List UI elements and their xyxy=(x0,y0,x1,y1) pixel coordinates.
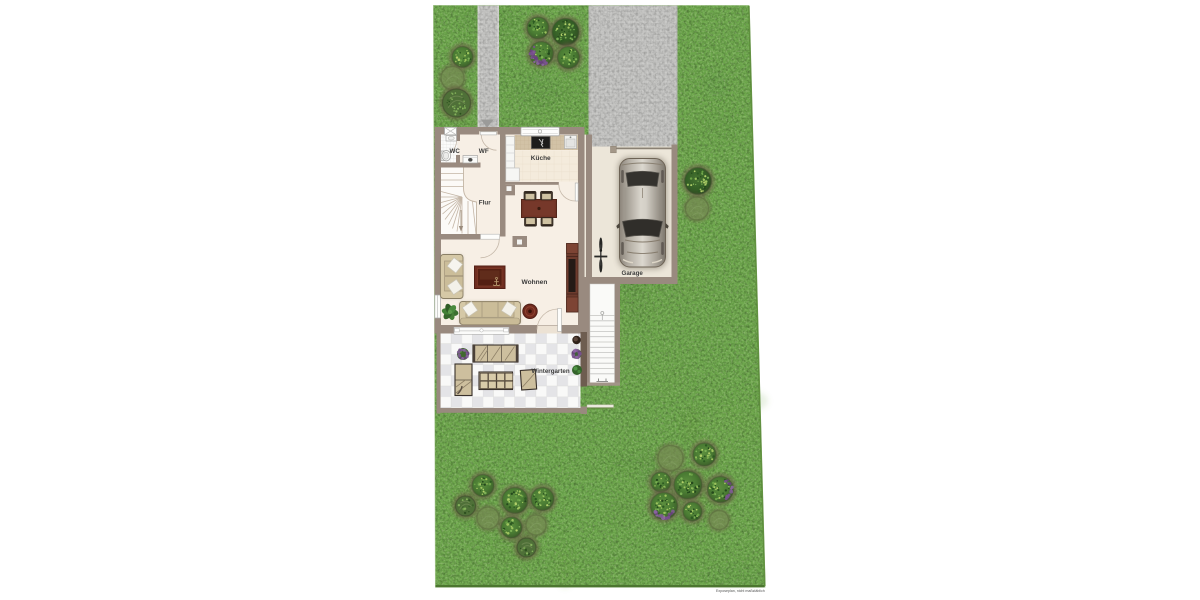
svg-text:Wohnen: Wohnen xyxy=(522,279,548,286)
svg-text:Exposeplan, nicht maßstäblich: Exposeplan, nicht maßstäblich xyxy=(716,589,765,593)
svg-text:Wintergarten: Wintergarten xyxy=(532,368,570,375)
svg-text:WC: WC xyxy=(450,148,461,155)
svg-text:Garage: Garage xyxy=(622,270,644,277)
svg-text:Küche: Küche xyxy=(531,155,551,162)
svg-text:Flur: Flur xyxy=(479,200,491,207)
svg-text:WF: WF xyxy=(479,148,489,155)
